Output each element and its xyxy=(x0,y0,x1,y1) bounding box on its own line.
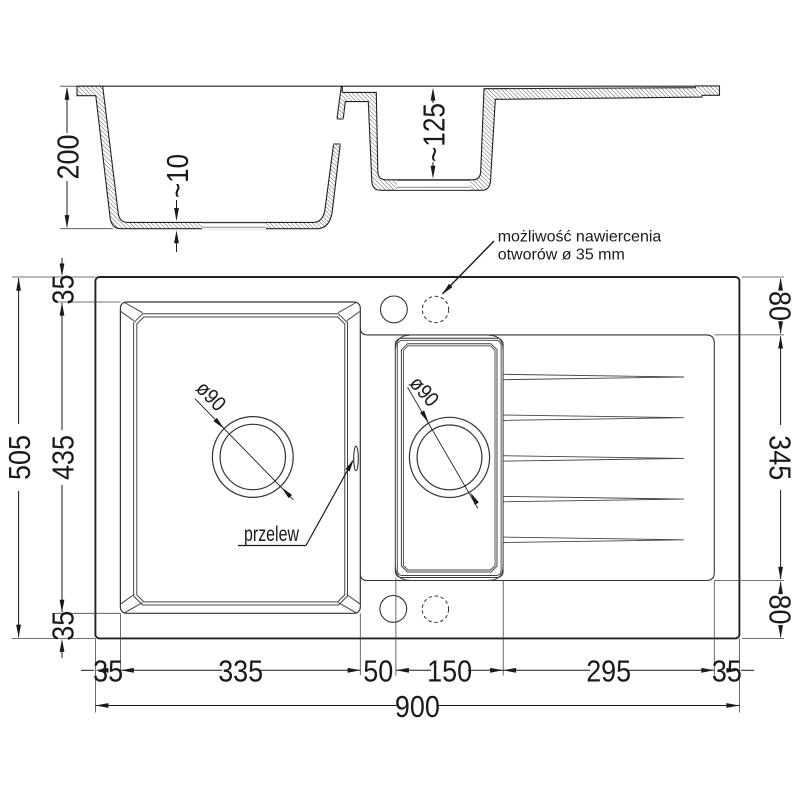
svg-text:80: 80 xyxy=(762,291,797,321)
svg-text:505: 505 xyxy=(2,435,37,480)
svg-text:900: 900 xyxy=(395,689,440,724)
svg-text:35: 35 xyxy=(45,611,80,641)
svg-text:przelew: przelew xyxy=(244,523,300,546)
svg-text:335: 335 xyxy=(218,654,263,689)
svg-text:50: 50 xyxy=(363,654,393,689)
svg-text:200: 200 xyxy=(50,135,85,180)
svg-text:~10: ~10 xyxy=(160,154,195,198)
svg-text:295: 295 xyxy=(586,654,631,689)
svg-text:80: 80 xyxy=(762,595,797,625)
svg-text:35: 35 xyxy=(93,654,123,689)
svg-text:150: 150 xyxy=(427,654,472,689)
svg-text:~125: ~125 xyxy=(416,103,451,162)
svg-text:możliwość nawiercenia: możliwość nawiercenia xyxy=(498,229,662,246)
svg-text:35: 35 xyxy=(45,275,80,305)
svg-text:35: 35 xyxy=(712,654,742,689)
svg-text:345: 345 xyxy=(762,435,797,480)
svg-text:otworów ø 35 mm: otworów ø 35 mm xyxy=(498,247,625,264)
svg-text:435: 435 xyxy=(45,435,80,480)
